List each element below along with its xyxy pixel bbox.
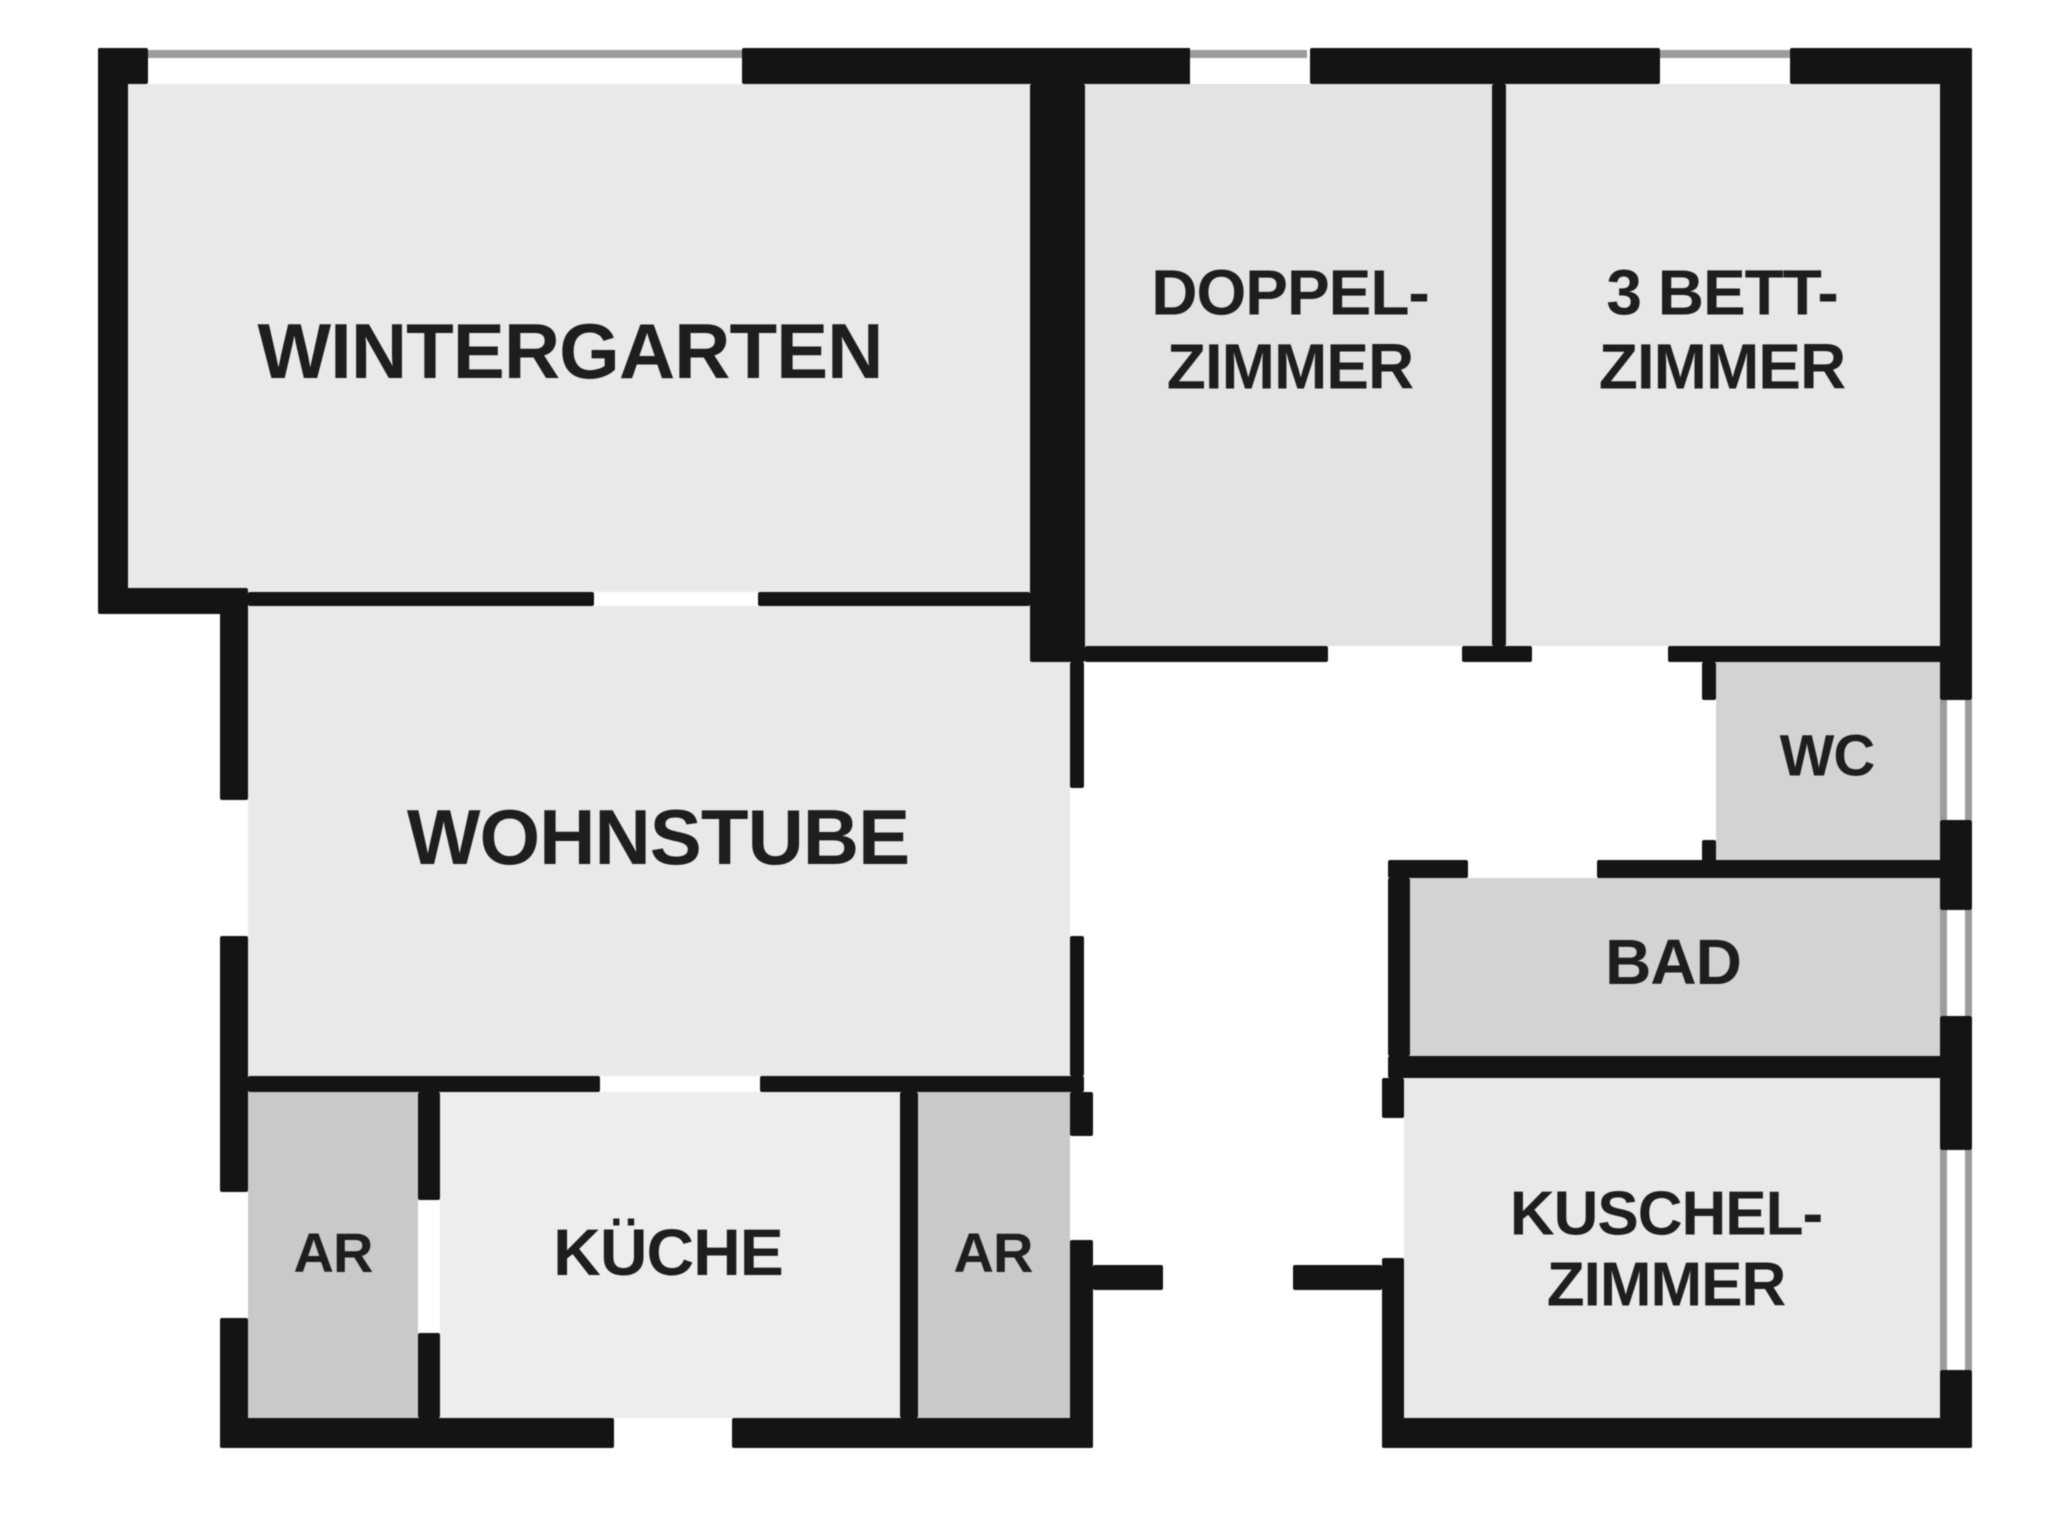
room-label-bad: BAD [1605, 926, 1741, 1000]
floor-plan: WINTERGARTENDOPPEL- ZIMMER3 BETT- ZIMMER… [0, 0, 2048, 1536]
room-label-wintergarten: WINTERGARTEN [258, 307, 883, 397]
room-label-kueche: KÜCHE [553, 1215, 783, 1291]
room-label-wc: WC [1780, 724, 1875, 791]
labels-layer: WINTERGARTENDOPPEL- ZIMMER3 BETT- ZIMMER… [0, 0, 2048, 1536]
room-label-wohnstube: WOHNSTUBE [407, 793, 909, 883]
room-label-ar-links: AR [294, 1221, 373, 1285]
room-label-dreibettzimmer: 3 BETT- ZIMMER [1599, 256, 1845, 403]
room-label-doppelzimmer: DOPPEL- ZIMMER [1151, 256, 1428, 403]
room-label-ar-rechts: AR [954, 1221, 1033, 1285]
room-label-kuschelzimmer: KUSCHEL- ZIMMER [1510, 1179, 1822, 1322]
